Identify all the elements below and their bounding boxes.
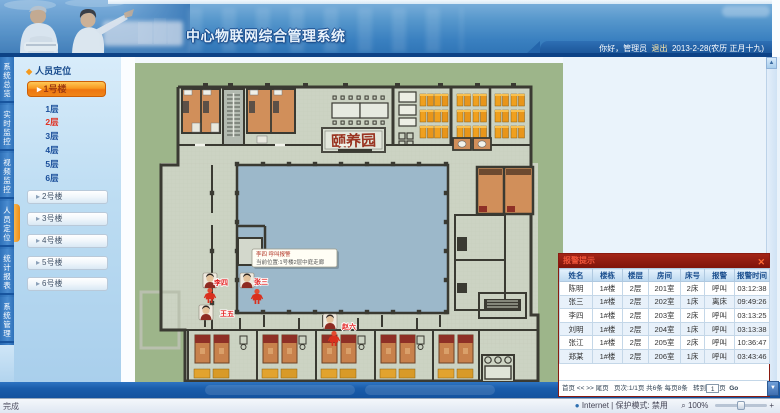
- svg-text:李四: 李四: [213, 278, 228, 287]
- svg-text:赵六: 赵六: [341, 322, 356, 331]
- svg-text:王五: 王五: [220, 310, 234, 318]
- svg-text:张三: 张三: [254, 277, 268, 286]
- svg-text:李四 呼叫报警: 李四 呼叫报警: [256, 250, 291, 258]
- svg-text:颐养园: 颐养园: [331, 131, 377, 151]
- svg-text:当前位置:1号楼2层中庭走廊: 当前位置:1号楼2层中庭走廊: [256, 258, 325, 266]
